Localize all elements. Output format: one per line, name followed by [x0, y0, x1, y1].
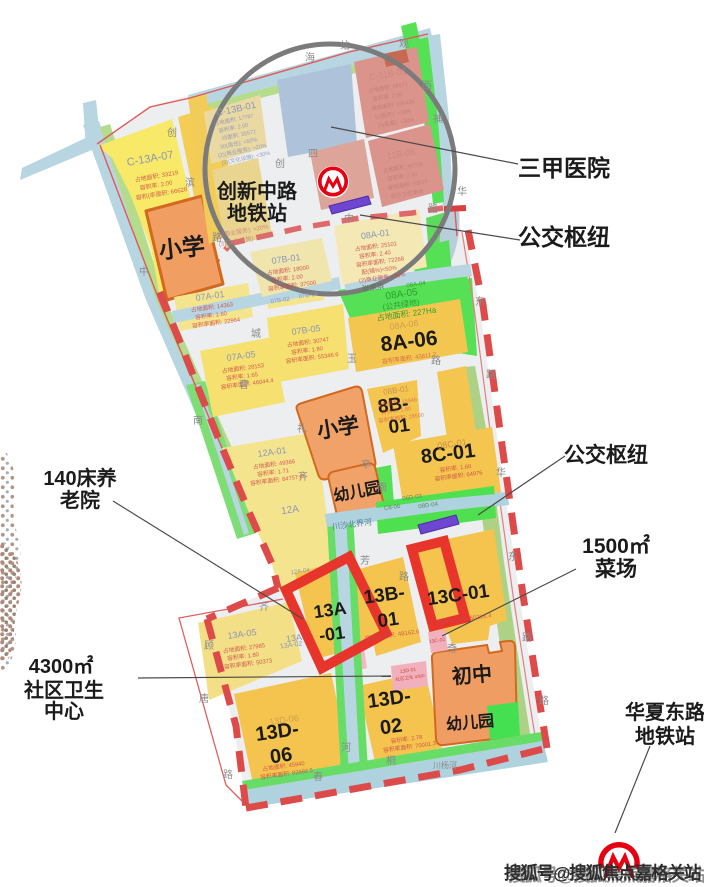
svg-text:地铁站: 地铁站 [635, 724, 695, 748]
svg-text:中: 中 [139, 265, 149, 278]
svg-text:站: 站 [340, 39, 350, 52]
svg-text:齐: 齐 [259, 600, 269, 613]
svg-text:海: 海 [305, 51, 315, 64]
svg-text:路: 路 [212, 231, 222, 244]
svg-text:华: 华 [457, 185, 467, 198]
svg-text:三甲医院: 三甲医院 [518, 155, 610, 181]
svg-text:路: 路 [399, 570, 409, 583]
svg-text:奇: 奇 [447, 642, 457, 655]
svg-text:华: 华 [496, 466, 506, 479]
svg-text:南: 南 [193, 414, 203, 427]
svg-text:01: 01 [376, 609, 400, 633]
svg-text:川杨河: 川杨河 [433, 760, 457, 770]
svg-text:观: 观 [399, 38, 409, 50]
svg-text:春: 春 [313, 771, 323, 783]
svg-text:路: 路 [522, 631, 532, 644]
svg-text:东: 东 [475, 295, 485, 308]
svg-text:顾: 顾 [204, 640, 214, 652]
svg-text:140床养: 140床养 [43, 466, 116, 490]
svg-text:唐: 唐 [199, 692, 209, 705]
svg-text:创: 创 [275, 157, 285, 170]
svg-text:4300㎡: 4300㎡ [29, 654, 94, 678]
svg-text:菜场: 菜场 [594, 558, 637, 581]
svg-text:创: 创 [167, 126, 177, 139]
svg-text:1500㎡: 1500㎡ [582, 534, 650, 558]
svg-text:河: 河 [341, 742, 351, 754]
svg-text:华夏东路: 华夏东路 [625, 700, 704, 724]
svg-text:卒: 卒 [361, 458, 371, 471]
svg-text:路: 路 [428, 202, 438, 215]
svg-text:老院: 老院 [60, 488, 100, 512]
svg-text:桐: 桐 [386, 754, 396, 767]
svg-text:中: 中 [344, 212, 354, 225]
svg-text:芳: 芳 [360, 554, 370, 567]
svg-text:公交枢纽: 公交枢纽 [518, 224, 610, 250]
svg-text:路: 路 [431, 354, 441, 367]
svg-text:初中: 初中 [451, 661, 493, 688]
svg-text:路: 路 [223, 768, 233, 781]
svg-text:社区卫生: 社区卫生 [23, 678, 104, 702]
svg-text:搜狐号@搜狐焦点嘉格关站: 搜狐号@搜狐焦点嘉格关站 [508, 865, 704, 885]
svg-text:地铁站: 地铁站 [227, 201, 287, 225]
svg-text:曹: 曹 [239, 378, 249, 391]
svg-text:东: 东 [508, 550, 518, 563]
svg-text:捕: 捕 [433, 112, 443, 125]
svg-text:-01: -01 [318, 622, 347, 645]
svg-text:礼: 礼 [297, 422, 307, 435]
svg-text:四: 四 [308, 149, 318, 160]
svg-text:南: 南 [377, 481, 387, 494]
svg-text:02: 02 [379, 715, 404, 740]
svg-text:玉: 玉 [347, 354, 357, 365]
svg-text:齐: 齐 [298, 470, 308, 483]
svg-text:城: 城 [251, 328, 261, 340]
svg-text:路: 路 [486, 368, 496, 381]
svg-text:西: 西 [422, 81, 432, 92]
svg-text:滨: 滨 [185, 176, 195, 189]
svg-text:小学: 小学 [158, 233, 206, 264]
svg-text:公交枢纽: 公交枢纽 [564, 443, 648, 467]
svg-text:中心: 中心 [44, 699, 84, 723]
svg-text:路: 路 [539, 694, 549, 707]
svg-text:创新中路: 创新中路 [216, 179, 298, 203]
